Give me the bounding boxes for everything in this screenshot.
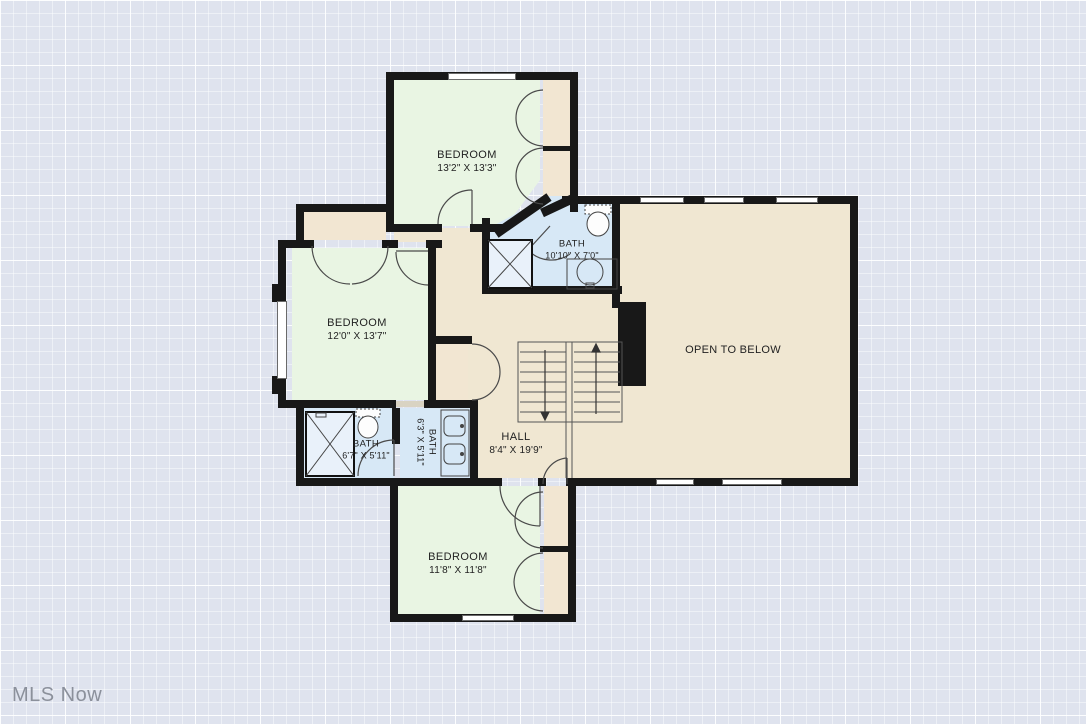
room-dims: 8'4" X 19'9" xyxy=(489,445,542,458)
staircase xyxy=(518,342,622,478)
room-name: OPEN TO BELOW xyxy=(685,344,781,358)
room-dims: 6'3" X 5'11" xyxy=(414,418,425,466)
room-name: BEDROOM xyxy=(428,551,488,565)
room-label-bath-middle: BATH 6'3" X 5'11" xyxy=(414,418,437,466)
room-label-bedroom-bottom: BEDROOM 11'8" X 11'8" xyxy=(428,551,488,577)
room-name: BATH xyxy=(545,238,598,250)
room-label-bedroom-left: BEDROOM 12'0" X 13'7" xyxy=(327,317,387,343)
room-name: BATH xyxy=(426,418,438,466)
room-dims: 13'2" X 13'3" xyxy=(437,163,497,176)
room-label-open-to-below: OPEN TO BELOW xyxy=(685,344,781,358)
room-label-hall: HALL 8'4" X 19'9" xyxy=(489,431,542,457)
room-name: BATH xyxy=(342,438,390,450)
plan-linework xyxy=(0,0,1086,724)
toilet-top-bath xyxy=(585,205,611,236)
toilet-left-bath xyxy=(356,409,380,438)
room-label-bedroom-top: BEDROOM 13'2" X 13'3" xyxy=(437,149,497,175)
room-dims: 11'8" X 11'8" xyxy=(428,565,488,578)
shower-top-bath xyxy=(488,240,532,288)
room-label-bath-left: BATH 6'7" X 5'11" xyxy=(342,438,390,461)
vanity-middle-bath xyxy=(441,410,469,476)
room-label-bath-top: BATH 10'10" X 7'0" xyxy=(545,238,598,261)
floor-plan-canvas: BEDROOM 13'2" X 13'3" BEDROOM 12'0" X 13… xyxy=(0,0,1086,724)
room-dims: 6'7" X 5'11" xyxy=(342,450,390,461)
sink-top-bath xyxy=(567,259,617,289)
room-name: HALL xyxy=(489,431,542,445)
room-name: BEDROOM xyxy=(437,149,497,163)
room-name: BEDROOM xyxy=(327,317,387,331)
mls-watermark: MLS Now xyxy=(12,684,102,707)
room-dims: 12'0" X 13'7" xyxy=(327,331,387,344)
room-dims: 10'10" X 7'0" xyxy=(545,250,598,261)
